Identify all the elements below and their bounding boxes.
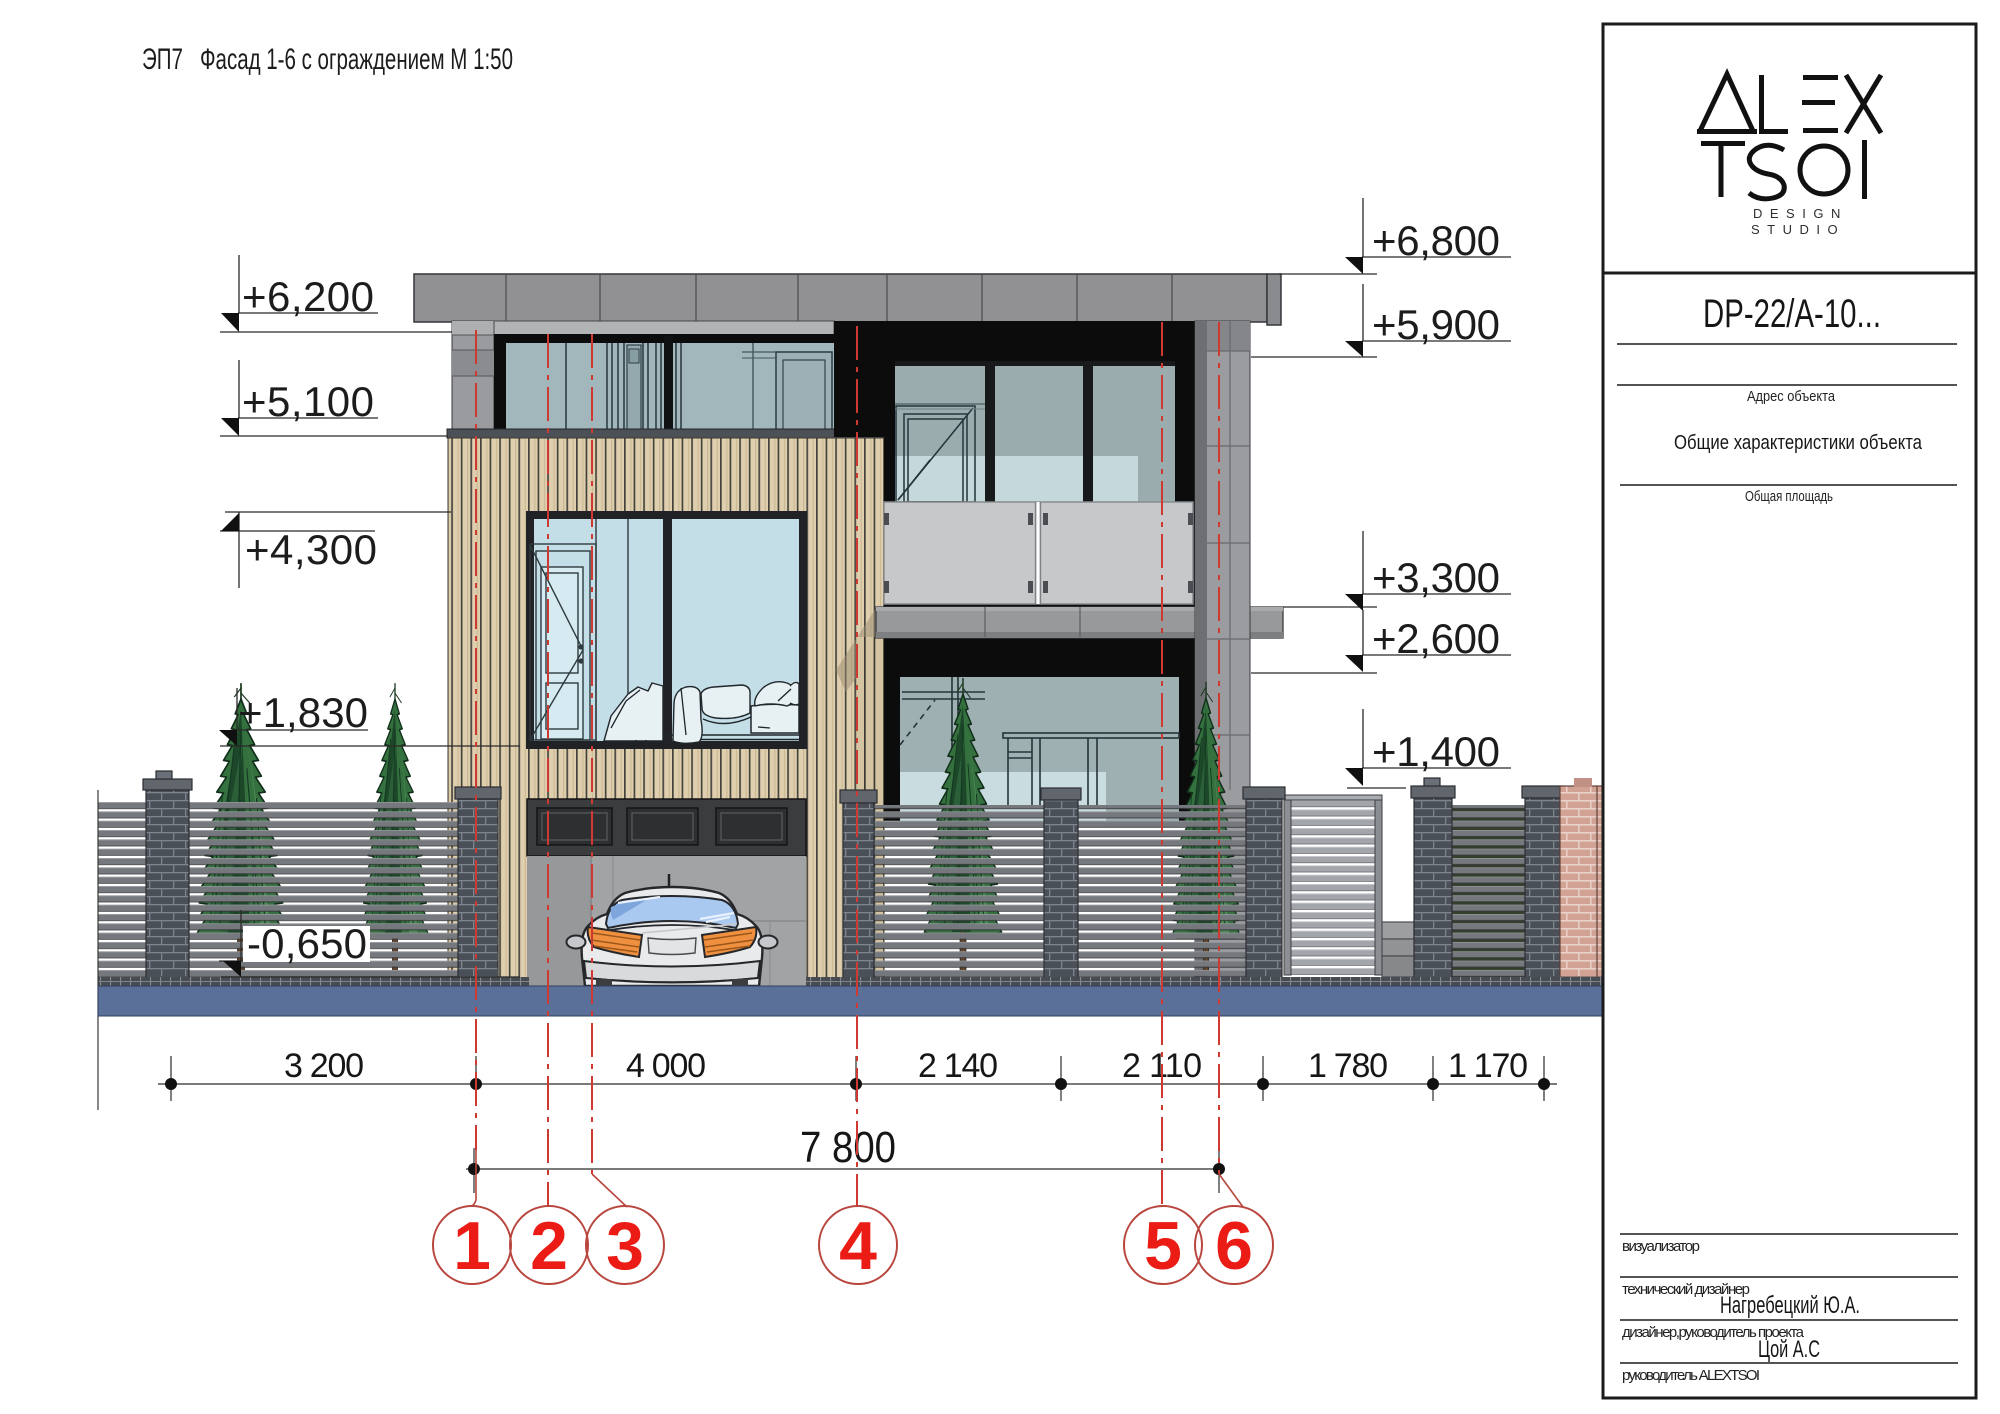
svg-text:+5,100: +5,100 — [242, 378, 374, 425]
svg-text:руководитель ALEXTSOI: руководитель ALEXTSOI — [1622, 1367, 1760, 1384]
svg-text:4: 4 — [839, 1208, 877, 1284]
svg-text:3: 3 — [606, 1208, 644, 1284]
svg-text:5: 5 — [1144, 1208, 1182, 1284]
svg-text:Нагребецкий Ю.А.: Нагребецкий Ю.А. — [1720, 1292, 1860, 1319]
svg-text:1 780: 1 780 — [1308, 1047, 1388, 1085]
svg-text:-0,650: -0,650 — [247, 920, 367, 967]
svg-text:+1,400: +1,400 — [1372, 728, 1500, 775]
svg-text:+2,600: +2,600 — [1372, 615, 1500, 662]
svg-text:7 800: 7 800 — [800, 1123, 896, 1172]
svg-text:Общая площадь: Общая площадь — [1745, 488, 1833, 505]
svg-text:6: 6 — [1215, 1208, 1253, 1284]
svg-text:2 140: 2 140 — [918, 1047, 998, 1085]
svg-text:+5,900: +5,900 — [1372, 301, 1500, 348]
svg-text:ЭП7 Фасад 1-6 с ограждением: ЭП7 Фасад 1-6 с ограждением М 1:50 — [142, 43, 513, 76]
svg-text:1: 1 — [453, 1208, 491, 1284]
svg-text:DESIGN: DESIGN — [1753, 206, 1848, 221]
svg-text:Общие характеристики объекта: Общие характеристики объекта — [1674, 432, 1923, 454]
svg-text:+4,300: +4,300 — [245, 526, 377, 573]
svg-text:Цой А.С: Цой А.С — [1758, 1336, 1820, 1363]
svg-text:3 200: 3 200 — [284, 1047, 364, 1085]
svg-text:DP-22/A-10...: DP-22/A-10... — [1703, 292, 1881, 336]
svg-text:+6,800: +6,800 — [1372, 217, 1500, 264]
svg-text:2: 2 — [530, 1208, 568, 1284]
svg-text:+1,830: +1,830 — [238, 689, 368, 736]
svg-text:1 170: 1 170 — [1448, 1047, 1528, 1085]
svg-text:+6,200: +6,200 — [242, 273, 374, 320]
svg-text:визуализатор: визуализатор — [1622, 1238, 1700, 1255]
svg-text:STUDIO: STUDIO — [1751, 222, 1845, 237]
svg-text:4 000: 4 000 — [626, 1047, 706, 1085]
svg-text:+3,300: +3,300 — [1372, 554, 1500, 601]
svg-text:Адрес объекта: Адрес объекта — [1747, 388, 1836, 405]
